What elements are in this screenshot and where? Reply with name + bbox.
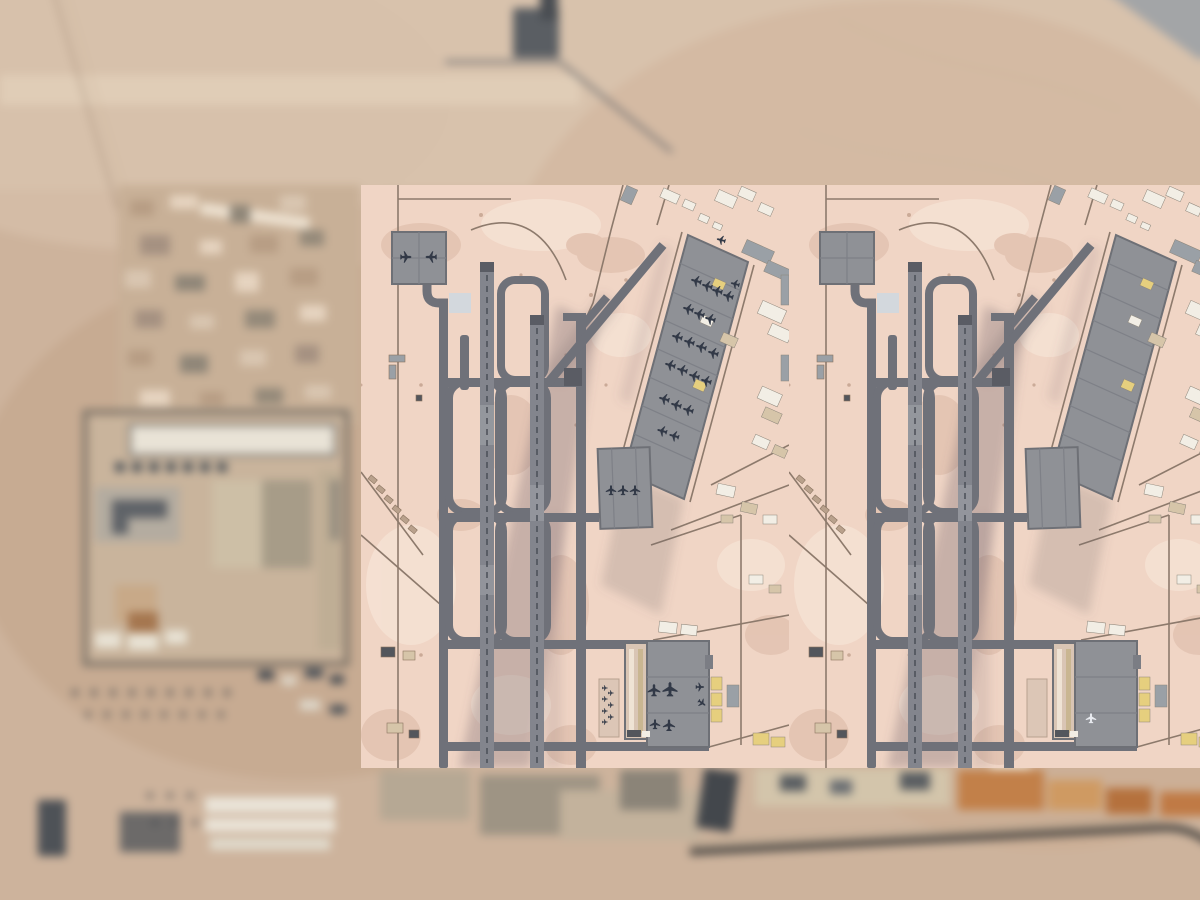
satellite-image-composite — [0, 0, 1200, 900]
walled-compound — [85, 412, 347, 664]
storage-yard — [118, 185, 360, 425]
satellite-panel-right — [789, 185, 1200, 768]
satellite-panel-left — [361, 185, 789, 768]
hangar-building — [130, 425, 335, 455]
